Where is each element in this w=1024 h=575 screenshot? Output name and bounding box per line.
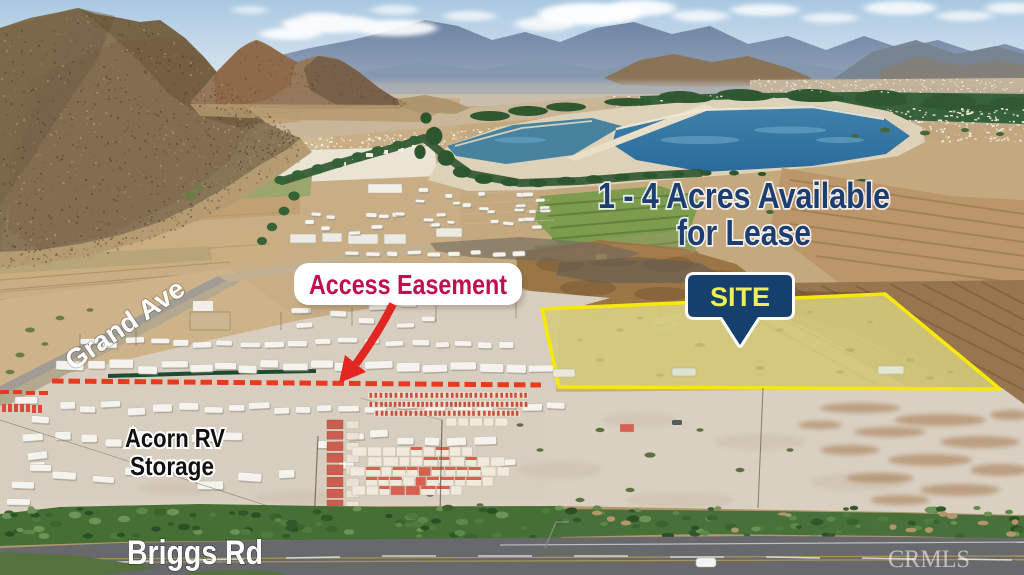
svg-text:Briggs Rd: Briggs Rd bbox=[127, 534, 263, 572]
svg-text:CRMLS: CRMLS bbox=[888, 546, 970, 573]
svg-text:Acorn RV: Acorn RV bbox=[125, 423, 226, 453]
svg-text:Access Easement: Access Easement bbox=[309, 269, 507, 300]
svg-text:1 - 4 Acres Available: 1 - 4 Acres Available bbox=[598, 175, 890, 216]
svg-text:Storage: Storage bbox=[130, 451, 214, 481]
svg-text:SITE: SITE bbox=[710, 282, 770, 312]
svg-text:for Lease: for Lease bbox=[677, 212, 811, 253]
